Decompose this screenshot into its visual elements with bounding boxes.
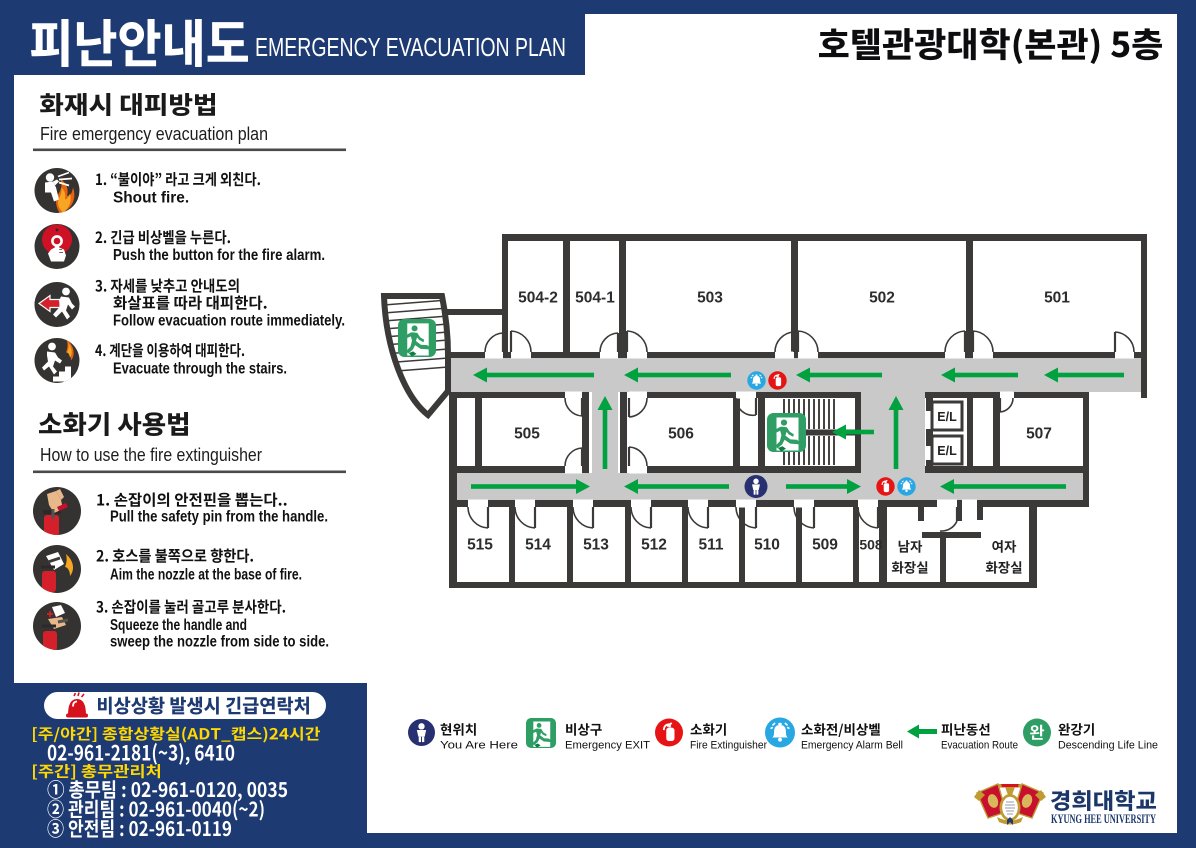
svg-text:Evacuate through the stairs.: Evacuate through the stairs. <box>113 361 287 378</box>
svg-text:E/L: E/L <box>937 410 957 424</box>
svg-text:513: 513 <box>583 536 609 553</box>
svg-text:512: 512 <box>641 536 667 553</box>
svg-text:Fire emergency evacuation plan: Fire emergency evacuation plan <box>40 123 268 144</box>
svg-text:504-1: 504-1 <box>575 289 615 306</box>
svg-text:507: 507 <box>1026 425 1052 442</box>
svg-text:503: 503 <box>697 289 723 306</box>
svg-text:Fire Extinguisher: Fire Extinguisher <box>690 740 767 752</box>
svg-text:Evacuation Route: Evacuation Route <box>941 740 1018 752</box>
svg-text:505: 505 <box>514 425 540 442</box>
svg-text:511: 511 <box>698 536 723 553</box>
svg-text:515: 515 <box>467 536 493 553</box>
svg-text:Emergency EXIT: Emergency EXIT <box>565 740 650 752</box>
svg-text:E/L: E/L <box>937 444 957 458</box>
svg-text:501: 501 <box>1044 289 1070 306</box>
svg-text:Emergency Alarm Bell: Emergency Alarm Bell <box>801 740 903 752</box>
svg-text:sweep the nozzle from side to: sweep the nozzle from side to side. <box>110 634 329 651</box>
svg-text:Follow evacuation route immedi: Follow evacuation route immediately. <box>113 313 345 330</box>
svg-text:You Are Here: You Are Here <box>440 740 518 752</box>
svg-text:510: 510 <box>754 536 780 553</box>
svg-text:Pull the safety pin from the h: Pull the safety pin from the handle. <box>110 509 328 526</box>
svg-text:Aim the nozzle at the base of: Aim the nozzle at the base of fire. <box>110 567 302 584</box>
svg-text:Push the button for the fire a: Push the button for the fire alarm. <box>113 247 325 264</box>
svg-text:Descending Life Line: Descending Life Line <box>1058 740 1158 752</box>
svg-text:504-2: 504-2 <box>518 289 558 306</box>
svg-text:Squeeze the handle and: Squeeze the handle and <box>110 617 247 634</box>
svg-text:Shout fire.: Shout fire. <box>113 190 189 207</box>
svg-text:508: 508 <box>859 536 883 552</box>
svg-text:506: 506 <box>668 425 694 442</box>
svg-text:509: 509 <box>812 536 838 553</box>
svg-text:514: 514 <box>525 536 551 553</box>
svg-text:KYUNG HEE UNIVERSITY: KYUNG HEE UNIVERSITY <box>1051 812 1156 826</box>
svg-text:How to use the fire extinguish: How to use the fire extinguisher <box>40 444 262 465</box>
svg-text:502: 502 <box>869 289 895 306</box>
svg-text:EMERGENCY EVACUATION PLAN: EMERGENCY EVACUATION PLAN <box>255 32 566 62</box>
